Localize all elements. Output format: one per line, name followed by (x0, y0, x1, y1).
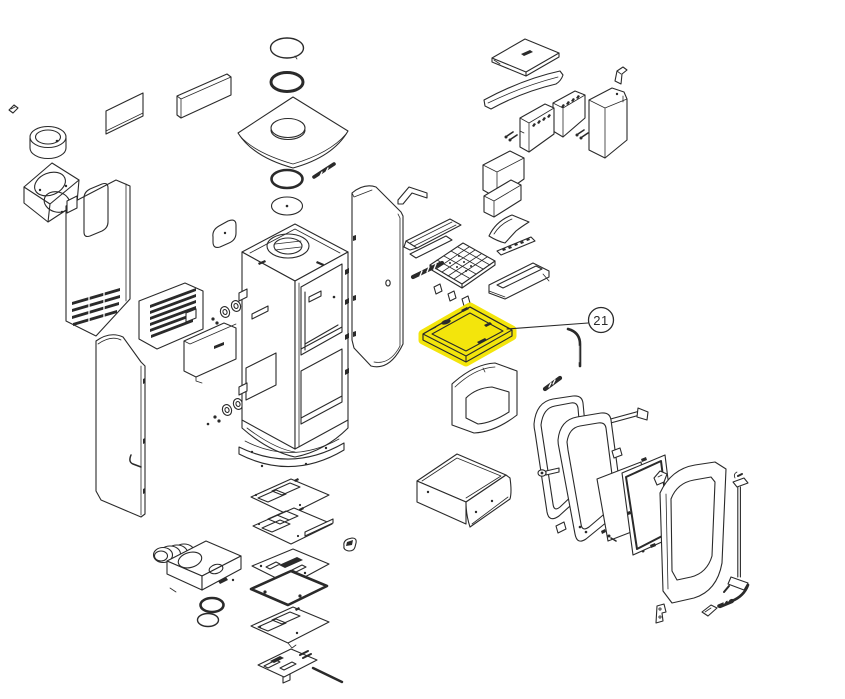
main-body (239, 224, 349, 457)
callout-21[interactable]: 21 (507, 308, 614, 333)
top-gasket-ring (271, 73, 303, 92)
rear-shield-panel-small (106, 93, 143, 134)
top-ring (271, 38, 304, 59)
firebrick-back (553, 91, 585, 137)
fastener-pair-a (505, 132, 518, 142)
exploded-diagram: 21 (0, 0, 845, 699)
collar-blank-disc (272, 197, 303, 215)
rear-shield-panel-large (177, 74, 231, 118)
wire-handle (568, 329, 580, 366)
firebrick-mid (520, 104, 554, 152)
ash-box (417, 454, 511, 527)
outer-door (660, 462, 726, 603)
side-brick-right (589, 88, 627, 158)
tiny-clip (9, 105, 18, 113)
fastener-pair-b (576, 130, 589, 140)
front-top-panel (452, 363, 517, 433)
hinge-rod (724, 472, 748, 592)
hinge-set-upper (211, 299, 242, 324)
baffle-plate-part-21[interactable] (423, 307, 512, 362)
gasket-ring-2 (198, 614, 219, 627)
small-clip (344, 538, 356, 551)
oval-cover-plate (213, 220, 236, 247)
base-plate-d (251, 607, 329, 648)
curved-baffle-plank (484, 71, 563, 109)
fire-grate (430, 243, 495, 306)
gasket-ring-1 (201, 598, 224, 612)
small-bracket (615, 67, 627, 84)
diagram-canvas: 21 (0, 0, 845, 699)
hinge-set-lower (207, 397, 244, 425)
base-plate-b (253, 507, 333, 544)
front-rail (489, 263, 549, 299)
top-lid-plate (492, 39, 559, 76)
collar-gasket (272, 170, 303, 188)
hatched-pin (543, 376, 562, 391)
grate-bracket (398, 187, 427, 204)
top-plate-with-hole (238, 97, 348, 168)
grate-slider-with-rod (258, 649, 342, 683)
door-bracket-right (702, 605, 717, 616)
damper-pin (314, 164, 334, 177)
left-side-panel (96, 335, 145, 517)
right-side-panel (352, 186, 403, 367)
callout-21-label: 21 (593, 313, 608, 328)
grate-curved-guide (489, 215, 529, 243)
door-bracket-left (656, 604, 666, 623)
base-seal-plate (251, 571, 327, 605)
left-rear-panel (66, 180, 130, 336)
flue-collar-ring (30, 127, 66, 159)
